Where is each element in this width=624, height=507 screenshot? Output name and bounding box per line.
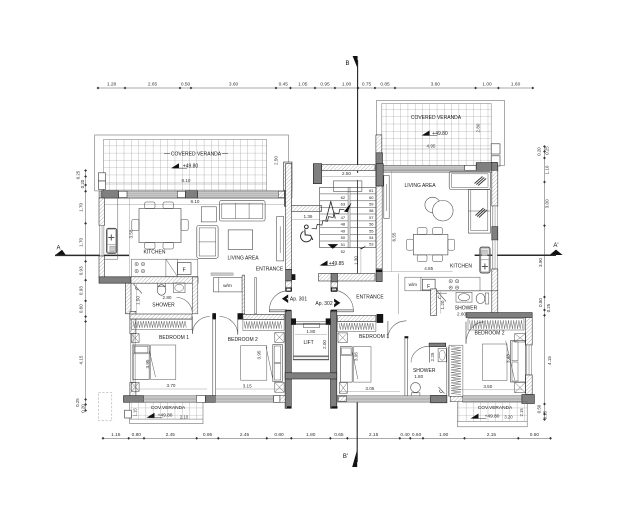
- svg-text:COVERED VERANDA: COVERED VERANDA: [171, 151, 222, 157]
- svg-text:2.25: 2.25: [430, 352, 435, 361]
- svg-text:3.15: 3.15: [243, 384, 252, 389]
- svg-text:+49.80: +49.80: [158, 412, 173, 418]
- svg-text:50: 50: [341, 235, 346, 240]
- svg-text:1.00: 1.00: [482, 82, 492, 88]
- svg-text:LIVING AREA: LIVING AREA: [404, 183, 436, 189]
- svg-text:47: 47: [341, 215, 346, 220]
- svg-text:0.20: 0.20: [80, 179, 85, 188]
- svg-text:1.05: 1.05: [298, 82, 308, 88]
- svg-text:SHOWER: SHOWER: [152, 303, 175, 309]
- svg-text:2.45: 2.45: [166, 432, 176, 438]
- svg-text:8.10: 8.10: [191, 199, 200, 204]
- svg-text:59: 59: [369, 202, 374, 207]
- svg-text:LIVING AREA: LIVING AREA: [227, 255, 259, 261]
- svg-text:3.05: 3.05: [365, 386, 374, 391]
- svg-text:0.50: 0.50: [181, 82, 191, 88]
- svg-text:0.93: 0.93: [79, 266, 84, 275]
- svg-text:A': A': [553, 243, 558, 249]
- svg-text:1.36: 1.36: [304, 214, 313, 219]
- svg-text:48: 48: [341, 222, 346, 227]
- svg-text:2.00: 2.00: [322, 340, 327, 349]
- svg-text:3.95: 3.95: [354, 352, 359, 361]
- svg-text:1.00: 1.00: [342, 82, 352, 88]
- svg-text:COV.VERANDA: COV.VERANDA: [478, 405, 513, 411]
- svg-text:58: 58: [369, 208, 374, 213]
- svg-text:2.15: 2.15: [487, 432, 497, 438]
- svg-text:2.15: 2.15: [519, 408, 524, 417]
- svg-text:0.60: 0.60: [412, 432, 422, 438]
- svg-text:0.25: 0.25: [75, 398, 80, 407]
- svg-text:0.75: 0.75: [362, 82, 372, 88]
- svg-text:1.90: 1.90: [439, 432, 449, 438]
- svg-text:1.10: 1.10: [545, 165, 550, 174]
- svg-text:2.10: 2.10: [180, 415, 189, 420]
- svg-text:2.80: 2.80: [163, 295, 172, 300]
- svg-text:57: 57: [369, 215, 374, 220]
- svg-text:+49.80: +49.80: [432, 131, 448, 137]
- svg-text:49: 49: [341, 228, 346, 233]
- svg-text:2.65: 2.65: [148, 82, 158, 88]
- svg-text:A: A: [56, 246, 60, 252]
- svg-text:w/m: w/m: [409, 282, 418, 287]
- svg-text:ENTRANCE: ENTRANCE: [356, 294, 384, 300]
- svg-text:54: 54: [369, 235, 374, 240]
- svg-text:55: 55: [369, 228, 374, 233]
- svg-text:w/m: w/m: [223, 283, 232, 289]
- svg-text:0.25: 0.25: [76, 170, 81, 179]
- svg-text:0.95: 0.95: [320, 82, 330, 88]
- svg-text:1.80: 1.80: [414, 374, 423, 379]
- svg-text:B': B': [343, 454, 348, 460]
- svg-text:+49.85: +49.85: [329, 261, 345, 267]
- svg-text:1.70: 1.70: [79, 202, 84, 211]
- svg-text:0.45: 0.45: [279, 82, 289, 88]
- svg-text:6.55: 6.55: [391, 232, 396, 241]
- svg-text:COVERED VERANDA: COVERED VERANDA: [411, 115, 462, 121]
- svg-text:0.40: 0.40: [400, 432, 410, 438]
- svg-text:BEDROOM 2: BEDROOM 2: [228, 337, 258, 343]
- svg-text:0.80: 0.80: [132, 432, 142, 438]
- svg-text:3.00: 3.00: [545, 199, 550, 208]
- svg-text:Ap. 301: Ap. 301: [290, 296, 307, 302]
- svg-text:3.70: 3.70: [167, 383, 176, 388]
- svg-text:63: 63: [341, 202, 346, 207]
- svg-text:LIFT: LIFT: [303, 340, 313, 346]
- svg-text:53: 53: [369, 242, 374, 247]
- svg-text:ENTRANCE: ENTRANCE: [256, 266, 284, 272]
- svg-text:3.50: 3.50: [483, 384, 492, 389]
- svg-text:4.85: 4.85: [424, 266, 433, 271]
- svg-text:0.65: 0.65: [334, 432, 344, 438]
- svg-text:1.15: 1.15: [133, 408, 138, 417]
- svg-text:8.10: 8.10: [182, 178, 191, 183]
- svg-text:1.80: 1.80: [306, 329, 315, 334]
- svg-text:0.80: 0.80: [274, 432, 284, 438]
- svg-text:1.80: 1.80: [306, 432, 316, 438]
- svg-text:BEDROOM 2: BEDROOM 2: [474, 331, 504, 337]
- svg-text:0.25: 0.25: [543, 410, 548, 419]
- svg-text:BEDROOM 1: BEDROOM 1: [359, 334, 389, 340]
- svg-text:61: 61: [369, 188, 374, 193]
- svg-text:KITCHEN: KITCHEN: [450, 264, 472, 270]
- svg-text:3.60: 3.60: [229, 82, 239, 88]
- svg-text:F: F: [183, 268, 186, 274]
- svg-text:1.30: 1.30: [353, 256, 358, 265]
- svg-text:0.50: 0.50: [537, 404, 542, 413]
- svg-text:0.80: 0.80: [538, 298, 543, 307]
- svg-text:Ap. 302: Ap. 302: [315, 301, 332, 307]
- svg-text:2.15: 2.15: [369, 432, 379, 438]
- svg-text:0.60: 0.60: [79, 304, 84, 313]
- svg-text:+49.80: +49.80: [485, 413, 500, 419]
- svg-text:0.85: 0.85: [380, 82, 390, 88]
- svg-text:0.95: 0.95: [203, 432, 213, 438]
- svg-text:3.20: 3.20: [504, 414, 513, 419]
- svg-text:F: F: [427, 284, 430, 290]
- svg-text:51: 51: [341, 242, 346, 247]
- svg-text:3.48: 3.48: [506, 354, 511, 363]
- svg-text:1.20: 1.20: [440, 300, 445, 309]
- svg-text:62: 62: [341, 195, 346, 200]
- svg-text:3.95: 3.95: [145, 359, 150, 368]
- svg-text:2.45: 2.45: [240, 432, 250, 438]
- svg-text:2.50: 2.50: [342, 171, 351, 176]
- svg-text:0.20: 0.20: [537, 147, 542, 156]
- svg-text:2.60: 2.60: [457, 311, 466, 316]
- svg-text:0.25: 0.25: [546, 303, 551, 312]
- svg-text:BEDROOM 1: BEDROOM 1: [159, 335, 189, 341]
- svg-text:1.15: 1.15: [111, 432, 121, 438]
- svg-text:COV.VERANDA: COV.VERANDA: [151, 405, 186, 411]
- svg-text:3.95: 3.95: [257, 350, 262, 359]
- svg-text:1.60: 1.60: [511, 82, 521, 88]
- svg-text:60: 60: [369, 195, 374, 200]
- svg-text:52: 52: [341, 249, 346, 254]
- svg-text:2.80: 2.80: [476, 123, 481, 132]
- svg-text:0.93: 0.93: [79, 286, 84, 295]
- svg-text:56: 56: [369, 222, 374, 227]
- svg-text:4.15: 4.15: [547, 356, 552, 365]
- svg-text:0.25: 0.25: [545, 146, 550, 155]
- svg-text:1.50: 1.50: [136, 296, 141, 305]
- svg-text:0.20: 0.20: [81, 404, 86, 413]
- svg-text:0.60: 0.60: [530, 432, 540, 438]
- svg-text:1.70: 1.70: [79, 237, 84, 246]
- svg-text:1.28: 1.28: [107, 82, 117, 88]
- svg-text:KITCHEN: KITCHEN: [144, 249, 166, 255]
- svg-text:+49.80: +49.80: [183, 164, 199, 170]
- svg-text:2.50: 2.50: [274, 156, 279, 165]
- svg-text:4.15: 4.15: [79, 355, 84, 364]
- svg-text:B: B: [345, 61, 349, 67]
- svg-text:4.95: 4.95: [427, 144, 436, 149]
- svg-text:3.90: 3.90: [538, 258, 543, 267]
- svg-text:3.60: 3.60: [431, 82, 441, 88]
